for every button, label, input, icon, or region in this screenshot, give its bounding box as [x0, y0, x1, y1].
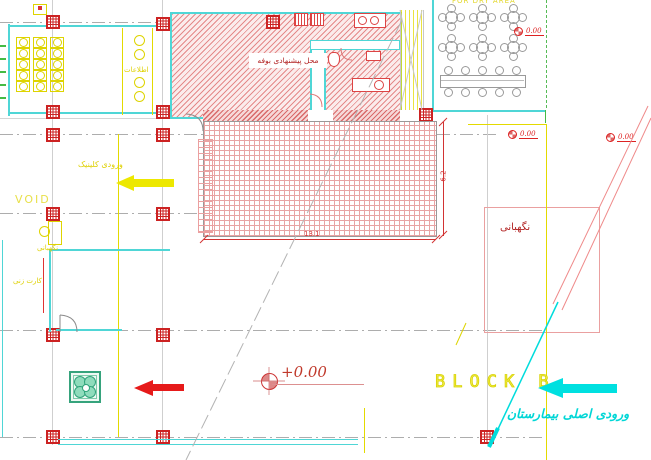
table-seat	[438, 43, 447, 52]
long-table-line	[441, 80, 524, 81]
elevation-dot-icon	[514, 27, 523, 36]
table-seat	[500, 43, 509, 52]
column-marker	[266, 15, 280, 29]
table-seat	[478, 52, 487, 61]
chair-seat-dot	[53, 71, 62, 80]
yellow-tick-diagonal	[456, 323, 466, 345]
table-seat	[478, 66, 487, 75]
guard-room-left-label: نگهبانی	[37, 244, 58, 252]
wall	[49, 249, 51, 332]
elevation-value: 0.00	[617, 133, 636, 142]
waiting-chair	[50, 70, 64, 81]
long-table-chairs	[444, 66, 524, 74]
green-tick	[545, 110, 546, 123]
round-table	[500, 34, 526, 60]
waiting-chair	[33, 48, 47, 59]
kitchen-counter	[352, 78, 390, 92]
green-tick	[0, 97, 6, 99]
elevation-value: 0.00	[525, 27, 544, 36]
table-seat	[469, 13, 478, 22]
column-marker	[46, 15, 60, 29]
table-seat	[469, 43, 478, 52]
hospital-main-entrance-label: ورودی اصلی بیمارستان	[498, 406, 638, 421]
table-seat	[495, 66, 504, 75]
waiting-chair	[16, 81, 30, 92]
table-seat	[509, 52, 518, 61]
table-seat	[478, 4, 487, 13]
gridline-h	[0, 437, 545, 438]
waiting-chair	[50, 59, 64, 70]
green-tick	[0, 58, 6, 60]
stove-fixture	[310, 13, 324, 26]
chair-seat-dot	[36, 38, 45, 47]
table-seat	[495, 88, 504, 97]
chair-seat-dot	[36, 49, 45, 58]
table-seat	[461, 88, 470, 97]
elevation-marker: 0.00	[514, 27, 544, 36]
wall	[56, 329, 122, 331]
table-seat	[518, 13, 527, 22]
table-seat	[461, 66, 470, 75]
table-seat	[447, 4, 456, 13]
counter-stool	[134, 91, 145, 102]
waiting-chairs-area	[16, 37, 76, 95]
table-seat	[447, 34, 456, 43]
table-seat	[512, 88, 521, 97]
buffet-partition	[310, 40, 400, 50]
kitchen-counter-burner	[374, 80, 384, 90]
elevation-point-icon	[261, 373, 278, 390]
top-cutoff-note: FOR DRY AREA	[452, 0, 516, 5]
table-seat	[456, 13, 465, 22]
column-marker	[156, 207, 170, 221]
buffet-corridor	[310, 40, 326, 113]
waiting-chair	[33, 59, 47, 70]
chair-seat-dot	[36, 71, 45, 80]
stove-fixture	[294, 13, 308, 26]
waiting-chair	[16, 37, 30, 48]
curtain-wall-line	[118, 134, 119, 437]
stair-ladder	[198, 139, 213, 233]
wall	[420, 110, 546, 112]
dimension-width-label: 13.1	[304, 230, 320, 238]
information-desk-label: اطلاعات	[124, 66, 149, 74]
chair-seat-dot	[53, 49, 62, 58]
chair-seat-dot	[19, 38, 28, 47]
chair-seat-dot	[53, 38, 62, 47]
table-seat	[444, 66, 453, 75]
column-marker	[156, 328, 170, 342]
wall	[8, 25, 160, 27]
dimension-depth-label: 6.2	[440, 170, 448, 181]
guard-chair	[39, 226, 50, 237]
counter-stool	[134, 35, 145, 46]
waiting-chair	[50, 81, 64, 92]
waiting-chair	[33, 70, 47, 81]
floor-plan-canvas: اطلاعات محل پیشنهادی بوفه FOR DRY AREA 0…	[0, 0, 651, 460]
terrace-paving	[203, 121, 437, 237]
chair-seat-dot	[53, 60, 62, 69]
chair-seat-dot	[19, 60, 28, 69]
elevation-marker: 0.00	[606, 133, 636, 142]
chair-seat-dot	[53, 82, 62, 91]
counter-edge	[122, 28, 123, 115]
sink-fixture	[366, 51, 381, 61]
chair-seat-dot	[19, 71, 28, 80]
gridline-h	[0, 22, 168, 23]
table-seat	[487, 43, 496, 52]
dimension-line	[204, 239, 436, 240]
column-marker	[156, 105, 170, 119]
waiting-chair	[50, 37, 64, 48]
table-seat	[478, 34, 487, 43]
column-marker	[156, 17, 170, 31]
block-b-label: BLOCK B	[435, 372, 556, 392]
waiting-chair	[33, 37, 47, 48]
round-table	[469, 34, 495, 60]
red-entrance-arrow	[134, 380, 184, 396]
long-table	[440, 75, 526, 88]
round-table	[438, 4, 464, 30]
waiting-chair	[50, 48, 64, 59]
counter-edge	[152, 28, 153, 115]
gridline-v	[162, 0, 163, 445]
wall-accent	[43, 258, 44, 313]
table-seat	[487, 13, 496, 22]
sink-bowl	[370, 16, 379, 25]
green-tick	[0, 71, 6, 73]
elevation-marker: 0.00	[508, 130, 538, 139]
guard-room-right-label: نگهبانی	[500, 222, 530, 233]
green-tick	[0, 45, 6, 47]
note-box-mark	[38, 6, 42, 10]
void-label: VOID	[15, 193, 51, 206]
column-marker	[46, 128, 60, 142]
waiting-chair	[33, 81, 47, 92]
elevation-value: 0.00	[519, 130, 538, 139]
long-table-chairs	[444, 88, 524, 96]
column-marker	[46, 105, 60, 119]
table-seat	[478, 22, 487, 31]
chair-seat-dot	[19, 49, 28, 58]
toilet-fixture	[328, 52, 340, 67]
column-marker	[46, 207, 60, 221]
table-seat	[512, 66, 521, 75]
wall	[432, 0, 434, 112]
column-marker	[419, 108, 433, 122]
table-seat	[518, 43, 527, 52]
wall	[2, 240, 3, 437]
buffet-label: محل پیشنهادی بوفه	[257, 56, 318, 65]
guard-desk	[48, 221, 62, 245]
time-card-label: کارت زنی	[13, 277, 42, 285]
chair-seat-dot	[19, 82, 28, 91]
table-seat	[438, 13, 447, 22]
wall-bottom	[58, 439, 358, 445]
stairs	[400, 10, 424, 112]
round-table	[469, 4, 495, 30]
waiting-chair	[16, 59, 30, 70]
wall-opening	[308, 110, 333, 121]
clinic-entrance-label: ورودی کلینیک	[78, 160, 123, 169]
table-seat	[509, 4, 518, 13]
boundary-line-yellow	[468, 124, 547, 125]
sink-bowl	[358, 16, 367, 25]
boundary-dashed-green	[546, 0, 547, 108]
green-tick	[0, 84, 6, 86]
waiting-chair	[16, 48, 30, 59]
round-table	[438, 34, 464, 60]
counter-stool	[134, 77, 145, 88]
wall	[50, 249, 170, 251]
table-seat	[447, 22, 456, 31]
chair-seat-dot	[36, 60, 45, 69]
clinic-entrance-arrow	[116, 175, 174, 191]
counter-stool	[134, 49, 145, 60]
elevation-leader-line	[272, 384, 364, 385]
column-marker	[480, 430, 494, 444]
column-marker	[156, 128, 170, 142]
waiting-chair	[16, 70, 30, 81]
elevation-dot-icon	[606, 133, 615, 142]
table-seat	[447, 52, 456, 61]
plant-center	[82, 384, 90, 392]
buffet-label-box: محل پیشنهادی بوفه	[249, 53, 327, 68]
table-seat	[478, 88, 487, 97]
table-seat	[444, 88, 453, 97]
elevation-dot-icon	[508, 130, 517, 139]
main-elevation-label: +0.00	[281, 363, 327, 381]
table-seat	[456, 43, 465, 52]
chair-seat-dot	[36, 82, 45, 91]
planter-box	[69, 371, 101, 403]
table-seat	[500, 13, 509, 22]
yellow-tick	[364, 408, 365, 453]
wall	[8, 24, 10, 116]
